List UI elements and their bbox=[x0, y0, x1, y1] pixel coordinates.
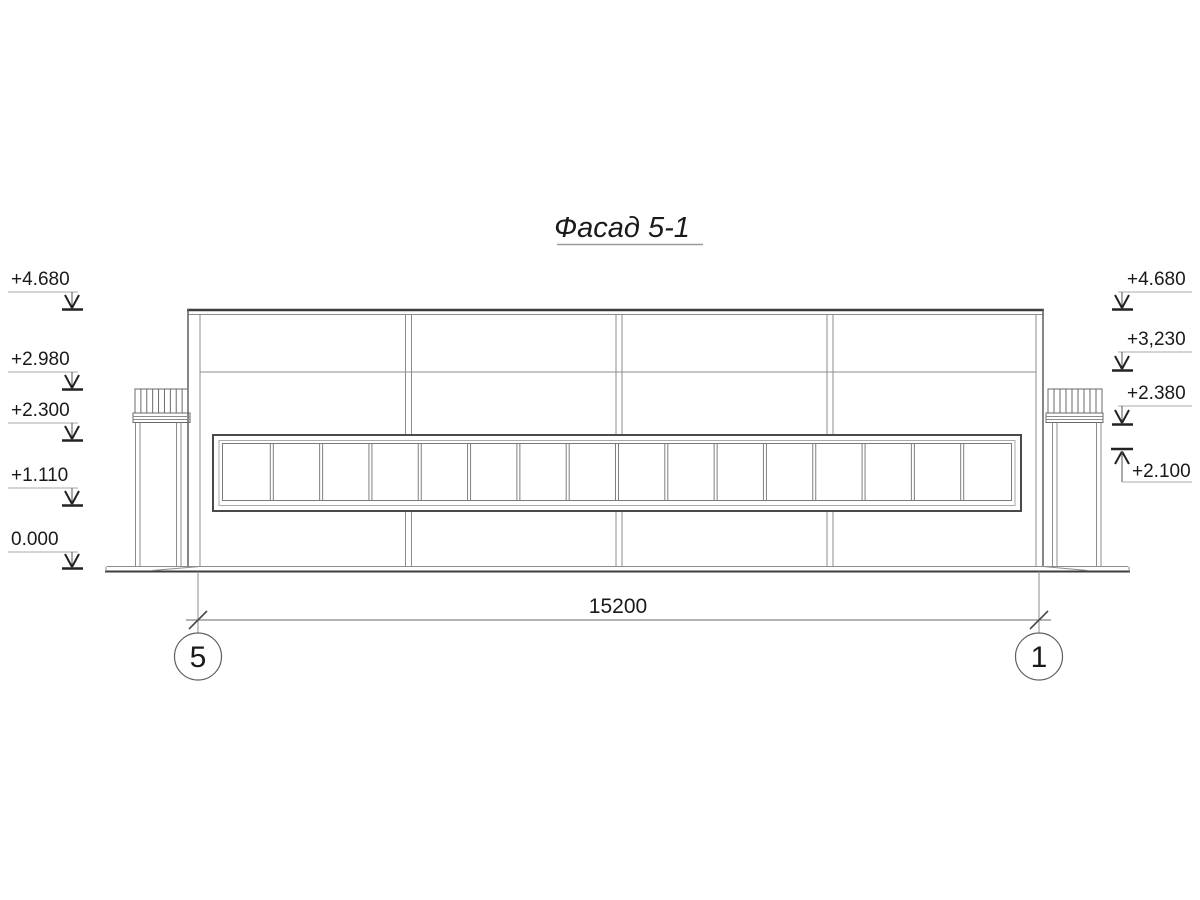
elevation-mark-left-0000: 0.000 bbox=[8, 529, 83, 569]
facade-drawing: Фасад 5-1 bbox=[0, 0, 1200, 900]
elevation-mark-right-3230: +3,230 bbox=[1112, 329, 1192, 371]
elevation-mark-right-2100: +2.100 bbox=[1111, 449, 1192, 482]
canopy-right bbox=[1046, 389, 1103, 566]
window-band-outer-frame bbox=[213, 435, 1021, 511]
page-title: Фасад 5-1 bbox=[554, 212, 690, 244]
elevation-label: +2.980 bbox=[11, 349, 70, 370]
canopy-right-hatch bbox=[1054, 389, 1096, 413]
apron-left bbox=[152, 567, 200, 571]
elevation-mark-left-2300: +2.300 bbox=[8, 400, 83, 441]
window-band bbox=[213, 435, 1021, 511]
drawing-sheet: Фасад 5-1 bbox=[0, 0, 1200, 900]
elevation-mark-left-1110: +1.110 bbox=[8, 465, 83, 506]
canopy-left-band bbox=[133, 413, 190, 423]
elevation-label: +4.680 bbox=[11, 269, 70, 290]
canopy-left bbox=[133, 389, 190, 566]
canopy-right-band bbox=[1046, 413, 1103, 423]
drawing-title: Фасад 5-1 bbox=[554, 212, 703, 245]
apron-right bbox=[1043, 567, 1088, 571]
elevation-label: 0.000 bbox=[11, 529, 59, 550]
canopy-left-posts bbox=[136, 423, 182, 567]
elevation-mark-right-4680: +4.680 bbox=[1112, 269, 1192, 310]
canopy-right-louver bbox=[1048, 389, 1102, 413]
axis-bubble-5: 5 bbox=[175, 633, 222, 680]
dimension-and-axes: 15200 5 1 bbox=[175, 572, 1063, 681]
elevation-label: +3,230 bbox=[1127, 329, 1186, 350]
axis-label-5: 5 bbox=[190, 641, 207, 674]
elevation-label: +1.110 bbox=[11, 465, 68, 486]
elevation-marks-left: +4.680 +2.980 +2.300 +1.110 bbox=[8, 269, 83, 569]
window-band-inner-frame bbox=[223, 444, 1012, 501]
elevation-label: +2.300 bbox=[11, 400, 70, 421]
canopy-left-hatch bbox=[141, 389, 182, 413]
axis-label-1: 1 bbox=[1031, 641, 1048, 674]
base-plinth bbox=[105, 567, 1130, 572]
elevation-label: +4.680 bbox=[1127, 269, 1186, 290]
elevation-label: +2.380 bbox=[1127, 383, 1186, 404]
window-band-mid-frame bbox=[219, 441, 1015, 506]
elevation-mark-left-4680: +4.680 bbox=[8, 269, 83, 310]
window-mullions bbox=[270, 444, 963, 501]
canopy-left-louver bbox=[135, 389, 188, 413]
elevation-mark-right-2380: +2.380 bbox=[1112, 383, 1192, 425]
canopy-right-posts bbox=[1053, 423, 1102, 567]
axis-bubble-1: 1 bbox=[1016, 633, 1063, 680]
dimension-value: 15200 bbox=[589, 595, 647, 618]
elevation-label: +2.100 bbox=[1132, 461, 1191, 482]
elevation-marks-right: +4.680 +3,230 +2.380 bbox=[1111, 269, 1192, 482]
elevation-mark-left-2980: +2.980 bbox=[8, 349, 83, 390]
